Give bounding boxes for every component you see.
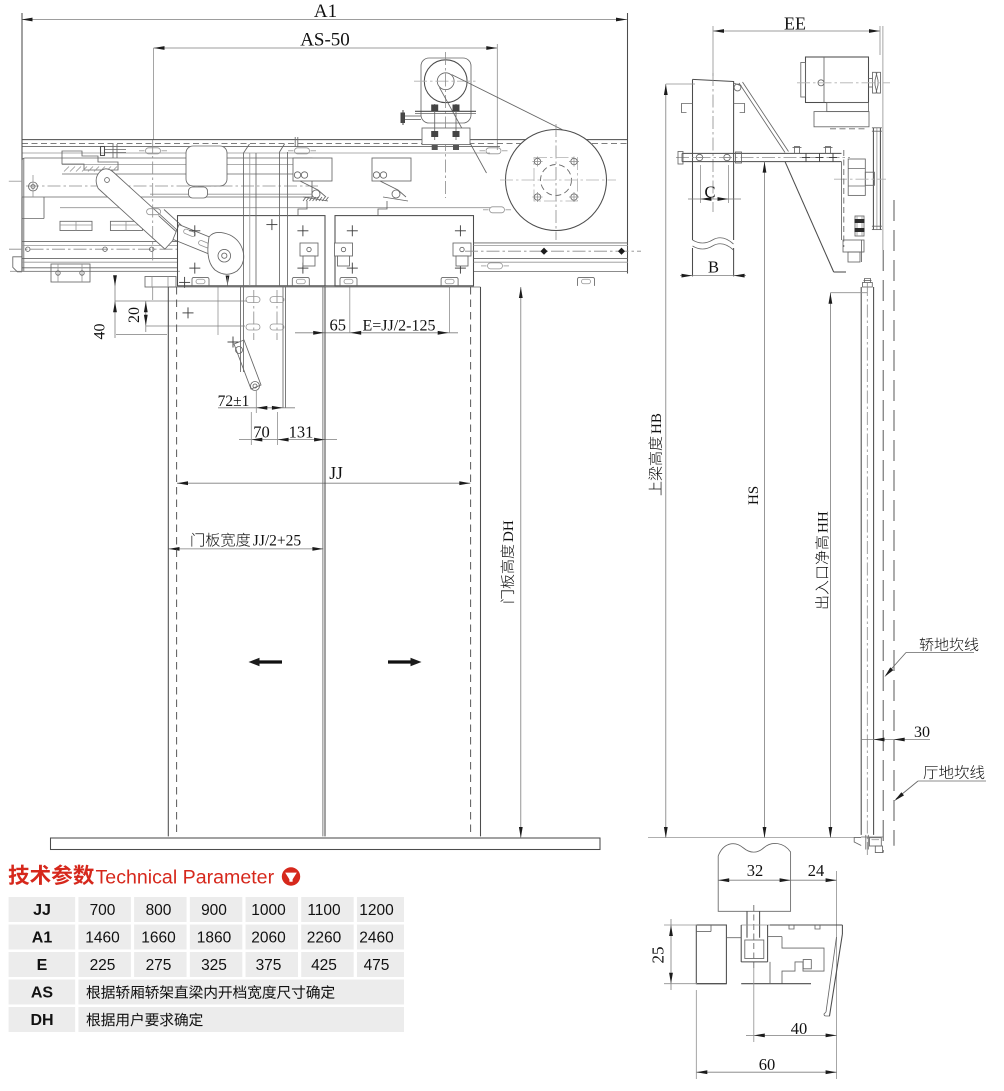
svg-text:70: 70 (253, 423, 270, 442)
svg-text:700: 700 (90, 902, 116, 919)
svg-text:25: 25 (649, 947, 668, 964)
svg-text:E: E (37, 957, 48, 974)
svg-text:225: 225 (90, 957, 116, 974)
svg-text:24: 24 (808, 861, 825, 880)
svg-text:65: 65 (330, 316, 347, 335)
svg-text:HH: HH (816, 511, 832, 533)
svg-text:A1: A1 (314, 1, 337, 22)
svg-text:40: 40 (92, 324, 109, 340)
svg-text:AS: AS (31, 985, 54, 1002)
svg-text:900: 900 (201, 902, 227, 919)
svg-text:A1: A1 (32, 930, 53, 947)
svg-text:1000: 1000 (251, 902, 286, 919)
svg-text:2460: 2460 (359, 930, 394, 947)
svg-text:375: 375 (256, 957, 282, 974)
svg-text:AS-50: AS-50 (300, 30, 350, 51)
svg-text:2260: 2260 (307, 930, 342, 947)
svg-text:1660: 1660 (141, 930, 176, 947)
svg-text:Technical Parameter: Technical Parameter (96, 867, 275, 889)
svg-text:C: C (704, 183, 715, 202)
svg-text:E=JJ/2-125: E=JJ/2-125 (362, 318, 435, 335)
svg-text:32: 32 (747, 861, 764, 880)
svg-text:HS: HS (746, 486, 762, 505)
svg-text:1460: 1460 (85, 930, 120, 947)
svg-text:275: 275 (146, 957, 172, 974)
svg-text:1860: 1860 (197, 930, 232, 947)
svg-text:2060: 2060 (251, 930, 286, 947)
svg-text:DH: DH (501, 520, 517, 542)
svg-text:B: B (708, 258, 719, 277)
svg-text:40: 40 (791, 1019, 808, 1038)
svg-text:DH: DH (30, 1012, 53, 1029)
svg-text:JJ: JJ (329, 463, 343, 483)
svg-text:JJ/2+25: JJ/2+25 (253, 533, 302, 550)
svg-text:1200: 1200 (359, 902, 394, 919)
svg-text:800: 800 (146, 902, 172, 919)
svg-text:1100: 1100 (307, 902, 341, 919)
svg-text:JJ: JJ (33, 902, 51, 919)
svg-text:131: 131 (289, 423, 314, 442)
svg-text:72±1: 72±1 (218, 393, 250, 410)
svg-text:425: 425 (311, 957, 337, 974)
svg-text:20: 20 (126, 307, 143, 323)
svg-text:HB: HB (649, 413, 665, 434)
svg-text:30: 30 (914, 724, 930, 741)
svg-text:60: 60 (759, 1055, 776, 1074)
svg-text:EE: EE (784, 14, 806, 34)
svg-text:325: 325 (201, 957, 227, 974)
svg-text:475: 475 (364, 957, 390, 974)
